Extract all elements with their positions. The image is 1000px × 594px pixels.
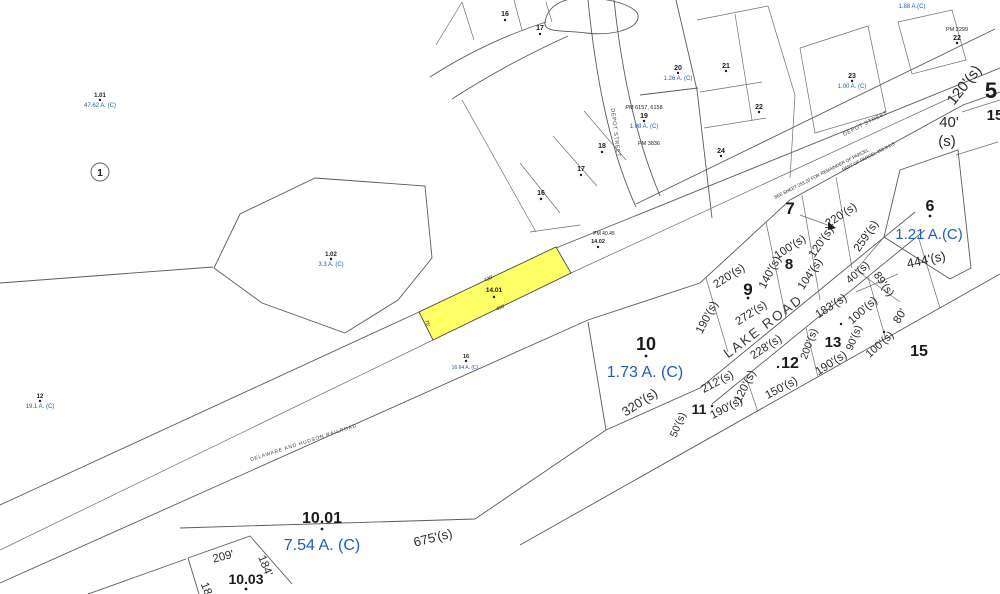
parcel-24-label: 24 — [717, 148, 725, 155]
parcel-10-label: 10 — [636, 334, 656, 354]
parcel-15-label: 15 — [910, 343, 928, 360]
parcel-1-01-acreage: 47.62 A. (C) — [84, 103, 116, 109]
parcel-20-acreage: 1.26 A. (C) — [664, 76, 693, 82]
dim-675s: 675'(s) — [412, 526, 454, 550]
dim-320s: 320'(s) — [619, 385, 660, 419]
road-edge — [430, 22, 546, 77]
dim-40s-a: 40'(s) — [844, 259, 872, 286]
parcel-25-acreage: 1.88 A.(C) — [898, 4, 925, 10]
pm-2299-note: PM 2299 — [946, 27, 968, 33]
depot-street-diagonal-label: DEPOT STREET — [842, 110, 889, 138]
parcel-22b-label: 22 — [953, 35, 961, 42]
dim-220s-a: 220'(s) — [824, 201, 860, 230]
dim-100s-b: 100'(s) — [846, 295, 880, 327]
parcel-17a-label: 17 — [536, 25, 544, 32]
parcel-boundary — [898, 10, 966, 74]
dim-120s-right: 120'(s) — [944, 62, 985, 108]
parcel-18-label: 18 — [598, 143, 606, 150]
parcel-11-label: 11 — [692, 401, 707, 417]
parcel-20-label: 20 — [674, 65, 682, 72]
parcel-17b-label: 17 — [577, 166, 585, 173]
railroad-label: DELAWARE AND HUDSON RAILROAD — [250, 423, 358, 463]
parcel-1-02-acreage: 3.3 A. (C) — [318, 262, 343, 268]
parcel-1-01-label: 1.01 — [94, 93, 106, 99]
dim-190s-a: 190'(s) — [694, 299, 721, 336]
parcel-7-label: 7 — [785, 199, 794, 218]
parcel-23-label: 23 — [848, 73, 856, 80]
parcel-10-01-label: 10.01 — [302, 510, 342, 527]
dim-444s: 444'(s) — [905, 248, 947, 271]
parcel-boundary — [214, 178, 432, 333]
see-sheet-note: SEE SHEET 253.20 FOR REMAINDER OF PARCEL — [773, 147, 870, 200]
parcel-10-01-acreage: 7.54 A. (C) — [284, 537, 360, 554]
dim-190s-c: 190'(s) — [708, 395, 745, 422]
parcel-1-02-label: 1.02 — [325, 252, 337, 258]
dim-40-right: 40' — [939, 114, 959, 131]
depot-street-edge — [614, 0, 660, 196]
dim-18x: 18 — [198, 581, 214, 594]
parcel-19-label: 19 — [640, 113, 648, 120]
dim-183s: 183'(s) — [814, 292, 850, 321]
parcel-14-02-label: 14.02 — [591, 239, 605, 245]
dim-140s: 140'(s) — [757, 254, 784, 291]
parcel-6-label: 6 — [926, 198, 935, 215]
parcel-divider — [462, 100, 626, 232]
parcel-16b-label: 16 — [537, 190, 545, 197]
parcel-15r-label: 15 — [987, 107, 1000, 124]
dim-259s: 259'(s) — [852, 218, 881, 254]
parcel-boundary — [0, 267, 213, 283]
parcel-10-acreage: 1.73 A. (C) — [607, 364, 683, 381]
parcel-divider — [436, 0, 552, 45]
parcel-13-label: 13 — [825, 334, 842, 351]
parcel-16a-label: 16 — [501, 11, 509, 18]
depot-street-edge — [588, 0, 636, 207]
dim-100s-c: 100'(s) — [864, 329, 897, 360]
dim-120s-a: 120'(s) — [807, 224, 836, 260]
parcel-8-label: 8 — [785, 256, 793, 273]
parcel-6-acreage: 1.21 A.(C) — [895, 226, 963, 243]
parcel-19-pm-note: PM 6157, 6158 — [625, 105, 662, 111]
dim-40s-right: (s) — [938, 133, 956, 150]
parcel-5-label: 5 — [985, 78, 997, 103]
map-canvas: 1 1.01 47.62 A. (C) 1.02 3.3 A. (C) 12 1… — [0, 0, 1000, 594]
tax-parcel-map: 1 1.01 47.62 A. (C) 1.02 3.3 A. (C) 12 1… — [0, 0, 1000, 594]
parcel-19-acreage: 1.08 A. (C) — [630, 124, 659, 130]
dim-50s: 50'(s) — [668, 411, 689, 440]
dim-104s: 104'(s) — [796, 256, 825, 292]
parcel-22a-label: 22 — [755, 104, 763, 111]
parcel-boundary — [180, 430, 606, 528]
parcel-9-label: 9 — [743, 280, 752, 299]
dim-209: 209' — [211, 549, 235, 566]
parcel-16rr-label: 16 — [463, 354, 469, 360]
parcel-divider — [697, 6, 795, 178]
parcel-14-01-label: 14.01 — [486, 287, 503, 294]
dim-220s-b: 220'(s) — [712, 262, 748, 291]
parcel-12-label: 12 — [781, 355, 799, 372]
dim-200s: 200'(s) — [798, 327, 820, 361]
pm-3836-note: PM 3836 — [638, 141, 660, 147]
lake-road-edge — [700, 212, 915, 388]
parcel-1-label: 1 — [97, 168, 103, 179]
dim-212s: 212'(s) — [699, 369, 736, 396]
railroad-strip-line — [0, 340, 433, 550]
parcel-23-acreage: 1.00 A. (C) — [838, 84, 867, 90]
dim-90s: 90'(s) — [844, 324, 865, 353]
parcel-21-label: 21 — [722, 63, 730, 70]
parcel-16rr-acreage: 16.64 A. (C) — [452, 365, 479, 371]
road-edge — [452, 36, 568, 99]
railroad-strip-line — [571, 92, 963, 273]
parcel-12w-acreage: 19.1 A. (C) — [26, 404, 55, 410]
dim-190s-b: 190'(s) — [814, 349, 850, 378]
dim-80: 80' — [891, 307, 909, 326]
pm-40-45-note: PM 40.45 — [593, 231, 615, 237]
parcel-12w-label: 12 — [37, 394, 44, 400]
parcel-10-03-label: 10.03 — [228, 571, 263, 587]
